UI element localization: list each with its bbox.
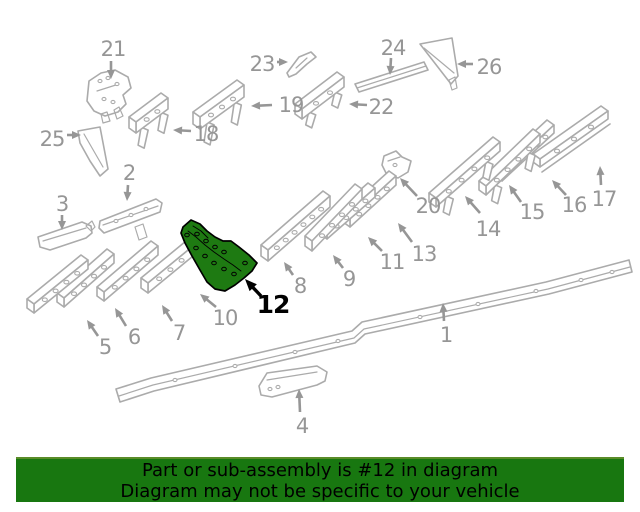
callout-3[interactable]: 3 — [56, 192, 68, 230]
part-number-label-16[interactable]: 16 — [562, 193, 587, 217]
part-number-label-9[interactable]: 9 — [343, 267, 355, 291]
callout-2[interactable]: 2 — [123, 161, 135, 201]
callout-26[interactable]: 26 — [457, 55, 502, 79]
part-number-label-1[interactable]: 1 — [440, 323, 452, 347]
part-number-label-10[interactable]: 10 — [213, 306, 238, 330]
part-25-drawing — [78, 127, 108, 176]
part-18-drawing — [129, 93, 168, 148]
part-number-label-7[interactable]: 7 — [173, 321, 185, 345]
exploded-parts-drawing: 1234567891011121314151617181920212223242… — [0, 0, 640, 512]
callout-9[interactable]: 9 — [333, 255, 355, 291]
callout-18[interactable]: 18 — [173, 122, 218, 146]
part-number-label-25[interactable]: 25 — [40, 127, 65, 151]
part-number-label-4[interactable]: 4 — [296, 414, 309, 438]
part-number-label-22[interactable]: 22 — [369, 95, 394, 119]
callout-10[interactable]: 10 — [200, 294, 237, 330]
part-2-drawing — [99, 199, 162, 240]
part-number-label-15[interactable]: 15 — [520, 200, 545, 224]
part-number-label-24[interactable]: 24 — [381, 36, 406, 60]
part-number-label-13[interactable]: 13 — [412, 242, 437, 266]
part-number-label-8[interactable]: 8 — [294, 274, 306, 298]
part-number-label-26[interactable]: 26 — [477, 55, 502, 79]
part-number-label-5[interactable]: 5 — [99, 335, 111, 359]
part-23-drawing — [287, 52, 316, 77]
part-number-label-21[interactable]: 21 — [101, 37, 126, 61]
callout-25[interactable]: 25 — [40, 127, 81, 151]
callout-20[interactable]: 20 — [400, 178, 440, 218]
part-number-label-3[interactable]: 3 — [56, 192, 68, 216]
part-1-drawing — [116, 260, 632, 402]
callout-23[interactable]: 23 — [250, 52, 288, 76]
part-number-label-18[interactable]: 18 — [194, 122, 219, 146]
parts-diagram-figure: 1234567891011121314151617181920212223242… — [0, 0, 640, 512]
callout-6[interactable]: 6 — [115, 308, 141, 349]
callout-17[interactable]: 17 — [592, 166, 617, 211]
part-4-drawing — [259, 366, 327, 397]
callout-11[interactable]: 11 — [368, 237, 404, 274]
callout-22[interactable]: 22 — [349, 95, 393, 119]
part-number-label-14[interactable]: 14 — [476, 217, 501, 241]
callout-16[interactable]: 16 — [552, 180, 587, 217]
part-number-label-6[interactable]: 6 — [128, 325, 141, 349]
part-number-label-17[interactable]: 17 — [592, 187, 617, 211]
part-21-drawing — [87, 70, 131, 123]
callout-12[interactable]: 12 — [245, 279, 289, 319]
part-number-label-11[interactable]: 11 — [380, 250, 405, 274]
callout-5[interactable]: 5 — [87, 320, 111, 359]
part-3-drawing — [38, 221, 95, 250]
banner-line2: Diagram may not be specific to your vehi… — [120, 481, 519, 502]
callout-19[interactable]: 19 — [251, 93, 303, 117]
part-number-label-2[interactable]: 2 — [123, 161, 135, 185]
callout-7[interactable]: 7 — [162, 305, 185, 345]
part-number-label-20[interactable]: 20 — [416, 194, 441, 218]
part-number-label-23[interactable]: 23 — [250, 52, 275, 76]
part-number-label-12[interactable]: 12 — [257, 290, 290, 319]
part-number-label-19[interactable]: 19 — [279, 93, 304, 117]
callout-15[interactable]: 15 — [509, 185, 544, 224]
banner-line1: Part or sub-assembly is #12 in diagram — [142, 460, 498, 481]
info-banner: Part or sub-assembly is #12 in diagram D… — [16, 457, 624, 502]
callout-4[interactable]: 4 — [295, 389, 308, 438]
